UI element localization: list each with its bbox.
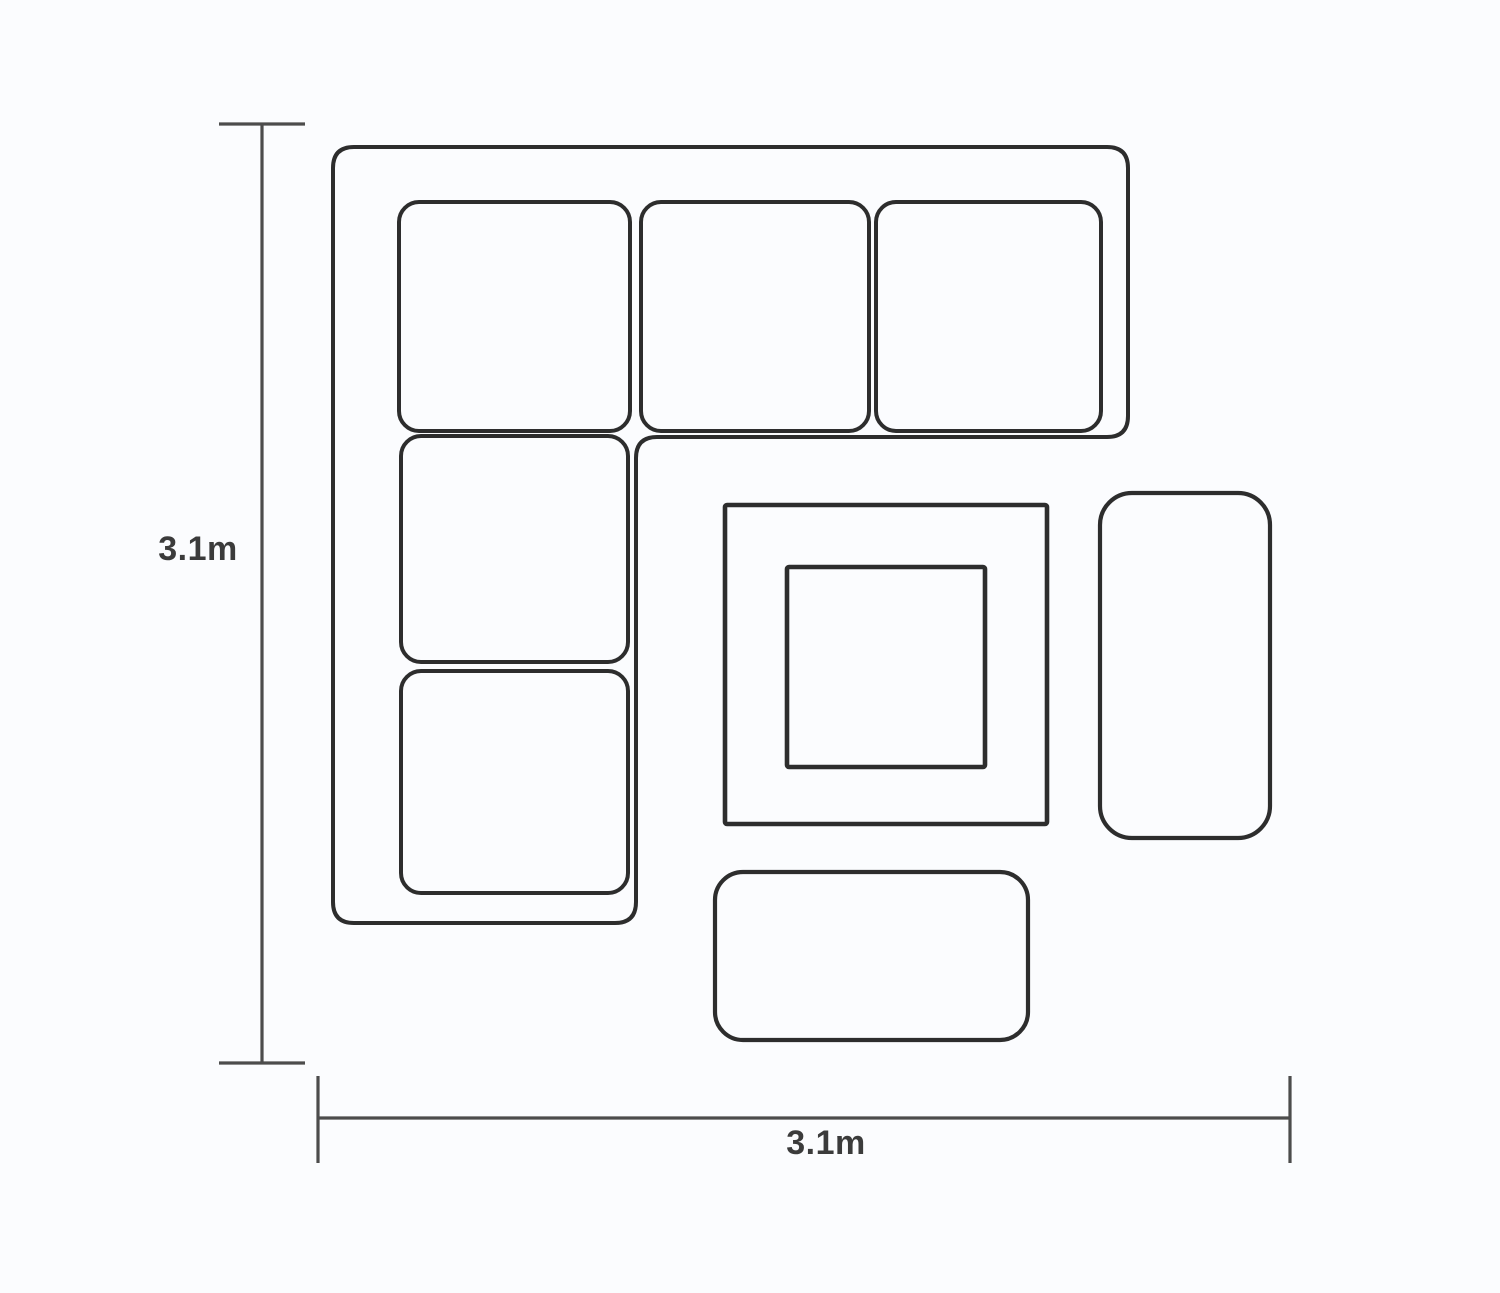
sofa-cushion-left-bottom [401, 671, 628, 893]
furniture-layout-diagram: 3.1m 3.1m [0, 0, 1500, 1293]
floorplan-canvas: 3.1m 3.1m [0, 0, 1500, 1293]
square-table-with-inset-top [725, 505, 1047, 824]
corner-sofa [333, 147, 1128, 923]
table-inner-inset [787, 567, 985, 767]
sofa-cushion-left-middle [401, 436, 628, 662]
sofa-cushion-corner [399, 202, 630, 431]
horizontal-dimension-label: 3.1m [786, 1124, 866, 1162]
vertical-dimension-label: 3.1m [158, 530, 238, 568]
side-bench [1100, 493, 1270, 838]
corner-sofa-frame [333, 147, 1128, 923]
sofa-cushion-top-middle [641, 202, 869, 431]
horizontal-dimension: 3.1m [318, 1076, 1290, 1163]
sofa-cushion-top-right [876, 202, 1101, 431]
table-outer-edge [725, 505, 1047, 824]
front-bench [715, 872, 1028, 1040]
vertical-dimension: 3.1m [158, 124, 305, 1063]
